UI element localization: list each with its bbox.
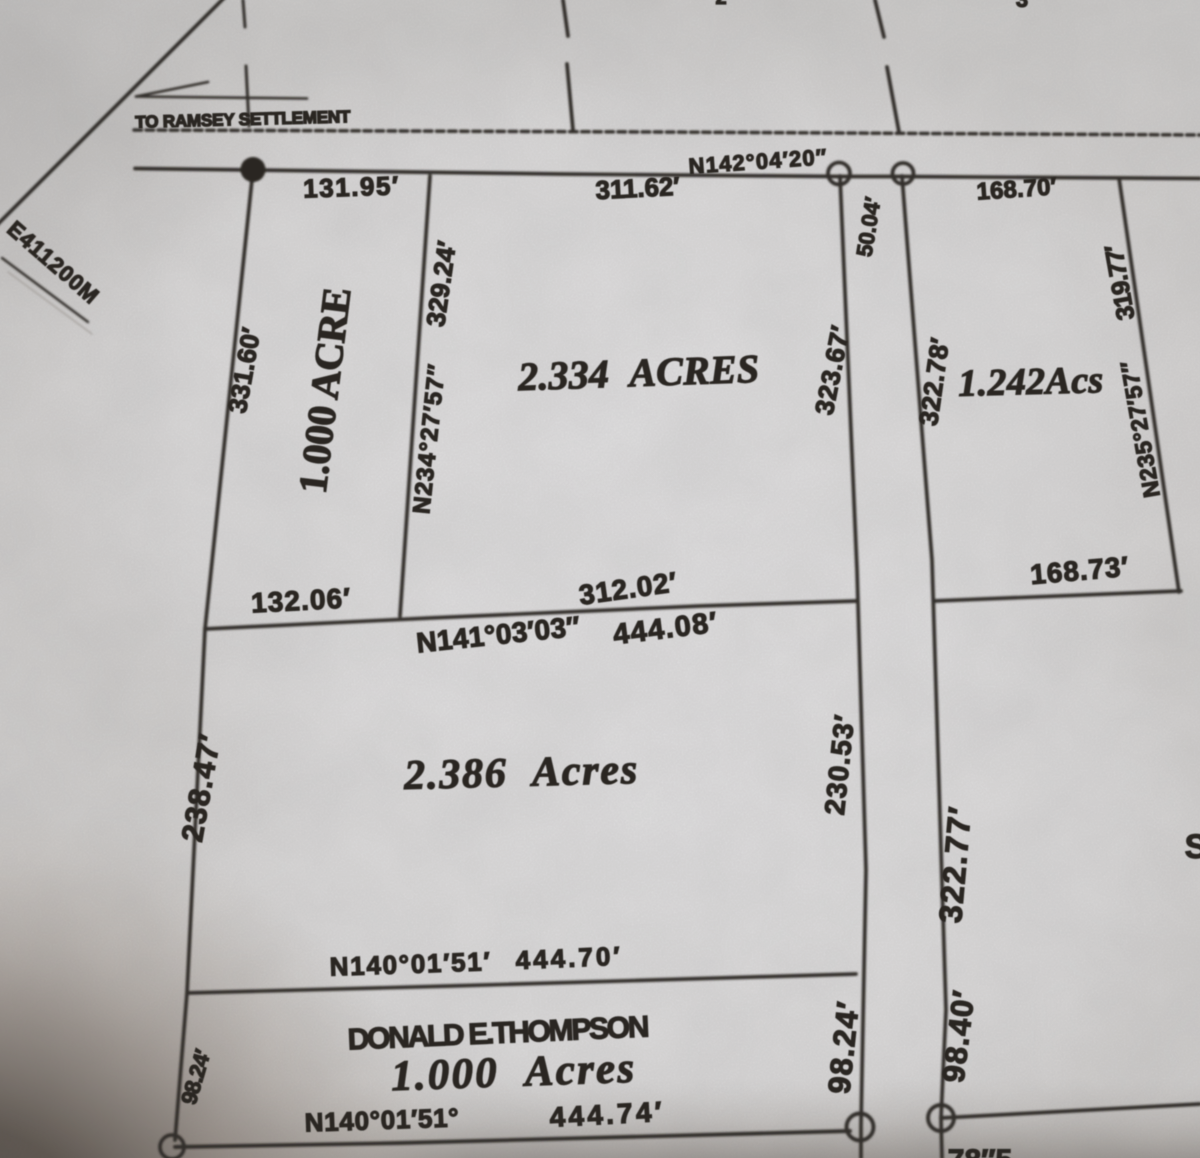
- svg-text:3: 3: [1016, 0, 1028, 12]
- svg-text:131.95′: 131.95′: [303, 170, 399, 203]
- svg-text:1.242Acs: 1.242Acs: [958, 359, 1104, 405]
- svg-text:N140°01′51°: N140°01′51°: [304, 1102, 459, 1137]
- svg-text:S: S: [1185, 828, 1200, 866]
- svg-text:78″5: 78″5: [948, 1144, 1012, 1158]
- svg-text:311.62′: 311.62′: [595, 171, 680, 205]
- svg-text:2.334 ACRES: 2.334 ACRES: [516, 346, 759, 399]
- svg-text:2: 2: [715, 0, 726, 9]
- svg-text:168.70′: 168.70′: [976, 173, 1058, 206]
